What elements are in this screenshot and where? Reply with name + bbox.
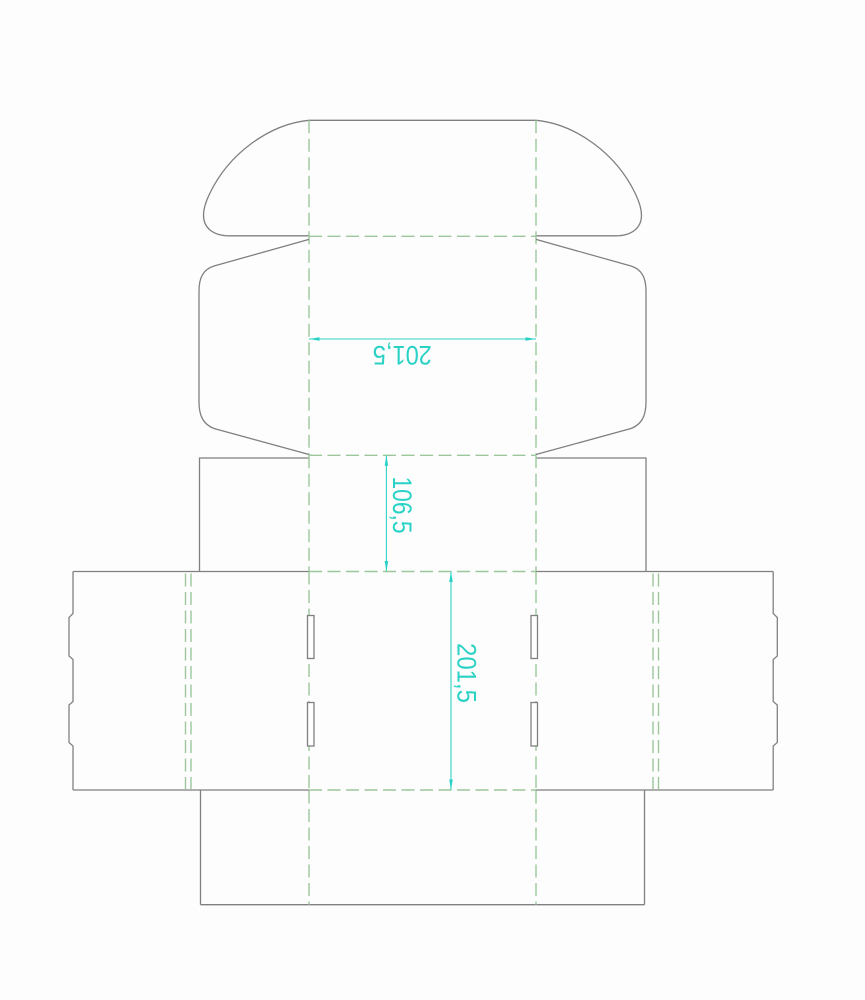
svg-text:201,5: 201,5 <box>452 643 482 703</box>
svg-text:106,5: 106,5 <box>387 477 417 534</box>
svg-text:201,5: 201,5 <box>373 340 432 370</box>
